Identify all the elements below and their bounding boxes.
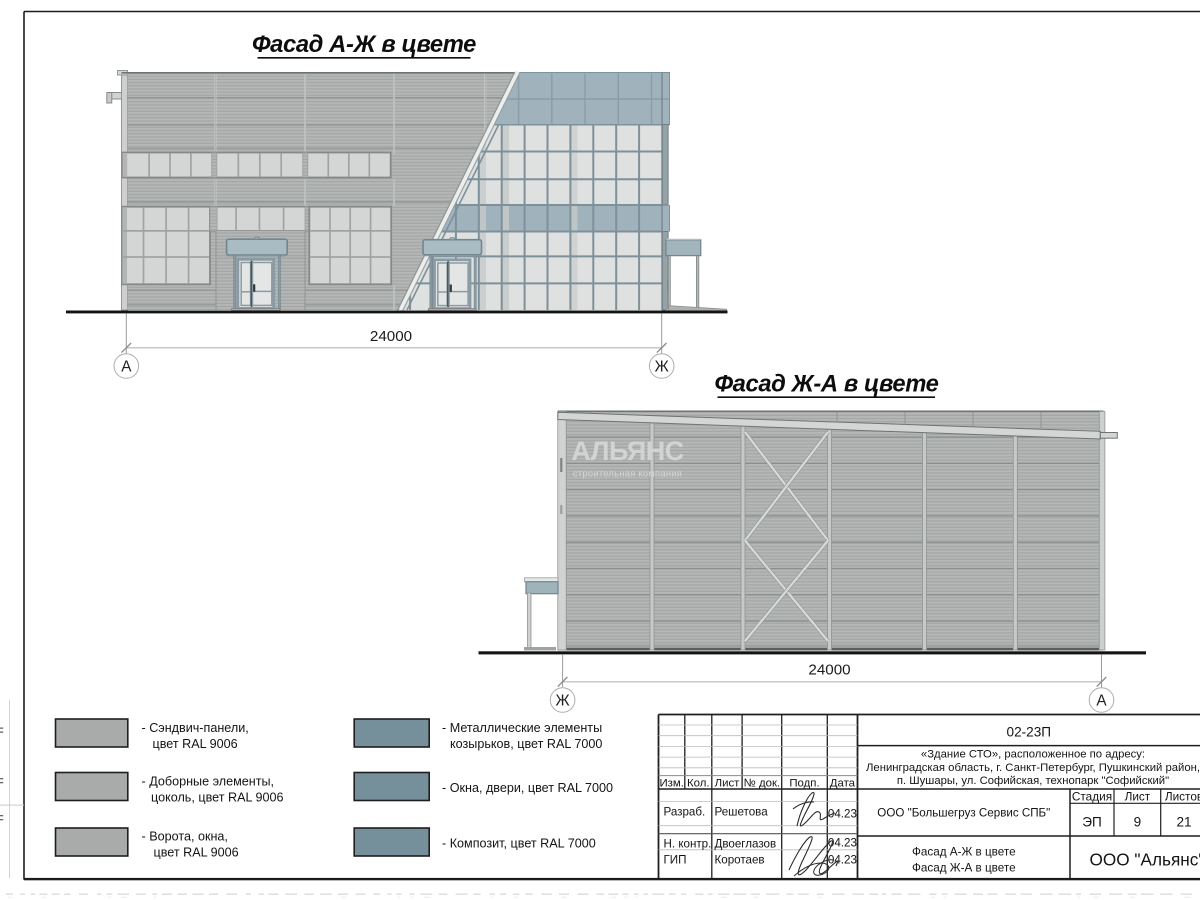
svg-text:Лист: Лист	[715, 777, 741, 789]
svg-text:Фасад А-Ж в цвете: Фасад А-Ж в цвете	[252, 31, 476, 58]
svg-text:- Окна, двери, цвет RAL 7000: - Окна, двери, цвет RAL 7000	[442, 781, 613, 795]
svg-text:- Композит, цвет RAL 7000: - Композит, цвет RAL 7000	[442, 837, 596, 851]
svg-text:цвет RAL 9006: цвет RAL 9006	[153, 737, 238, 751]
svg-text:Решетова: Решетова	[715, 806, 769, 819]
svg-text:Лист: Лист	[1125, 790, 1151, 804]
svg-text:Стадия: Стадия	[1072, 790, 1112, 804]
svg-text:«Здание СТО», расположенное по: «Здание СТО», расположенное по адресу:	[921, 748, 1145, 760]
svg-text:Коротаев: Коротаев	[715, 854, 765, 867]
svg-text:АЛЬЯНС: АЛЬЯНС	[571, 436, 684, 466]
svg-text:цоколь, цвет RAL 9006: цоколь, цвет RAL 9006	[151, 791, 284, 805]
svg-text:Кол.: Кол.	[687, 777, 710, 789]
svg-text:Н. контр.: Н. контр.	[664, 838, 712, 851]
svg-text:Подп.: Подп.	[789, 777, 819, 789]
svg-text:- Ворота, окна,: - Ворота, окна,	[142, 830, 228, 844]
svg-text:п. Шушары, ул. Софийская, техн: п. Шушары, ул. Софийская, технопарк "Соф…	[897, 775, 1169, 787]
svg-text:24000: 24000	[370, 328, 412, 345]
svg-text:ООО "Большегруз Сервис СПБ": ООО "Большегруз Сервис СПБ"	[877, 807, 1050, 820]
svg-text:Разраб.: Разраб.	[664, 806, 706, 819]
svg-text:02-23П: 02-23П	[1007, 725, 1052, 740]
svg-text:козырьков, цвет RAL 7000: козырьков, цвет RAL 7000	[450, 737, 602, 751]
svg-text:ООО "Альянс": ООО "Альянс"	[1090, 850, 1200, 870]
svg-text:- Металлические элементы: - Металлические элементы	[442, 721, 602, 735]
svg-text:Ленинградская область, г. Санк: Ленинградская область, г. Санкт-Петербур…	[866, 762, 1200, 774]
svg-text:- Сэндвич-панели,: - Сэндвич-панели,	[142, 721, 249, 735]
svg-text:Дата: Дата	[830, 777, 856, 789]
svg-text:ЭП: ЭП	[1082, 815, 1102, 830]
svg-text:Листов: Листов	[1165, 790, 1200, 804]
svg-text:строительная компания: строительная компания	[573, 469, 682, 479]
svg-text:А: А	[1096, 692, 1107, 709]
svg-text:Двоеглазов: Двоеглазов	[715, 838, 777, 851]
svg-text:Ж: Ж	[556, 692, 570, 709]
svg-text:Изм.: Изм.	[659, 777, 683, 789]
svg-text:Фасад Ж-А в цвете: Фасад Ж-А в цвете	[714, 371, 938, 398]
svg-text:21: 21	[1176, 815, 1191, 830]
svg-text:Фасад Ж-А в цвете: Фасад Ж-А в цвете	[912, 862, 1016, 875]
svg-text:Фасад А-Ж в цвете: Фасад А-Ж в цвете	[912, 846, 1016, 859]
svg-text:ГИП: ГИП	[664, 854, 687, 867]
svg-text:24000: 24000	[808, 661, 850, 678]
svg-text:Ж: Ж	[655, 358, 669, 375]
svg-text:А: А	[121, 358, 132, 375]
svg-text:- Доборные элементы,: - Доборные элементы,	[142, 775, 275, 789]
svg-text:№ док.: № док.	[744, 777, 781, 789]
svg-text:цвет RAL 9006: цвет RAL 9006	[154, 846, 239, 860]
svg-text:9: 9	[1134, 815, 1142, 830]
